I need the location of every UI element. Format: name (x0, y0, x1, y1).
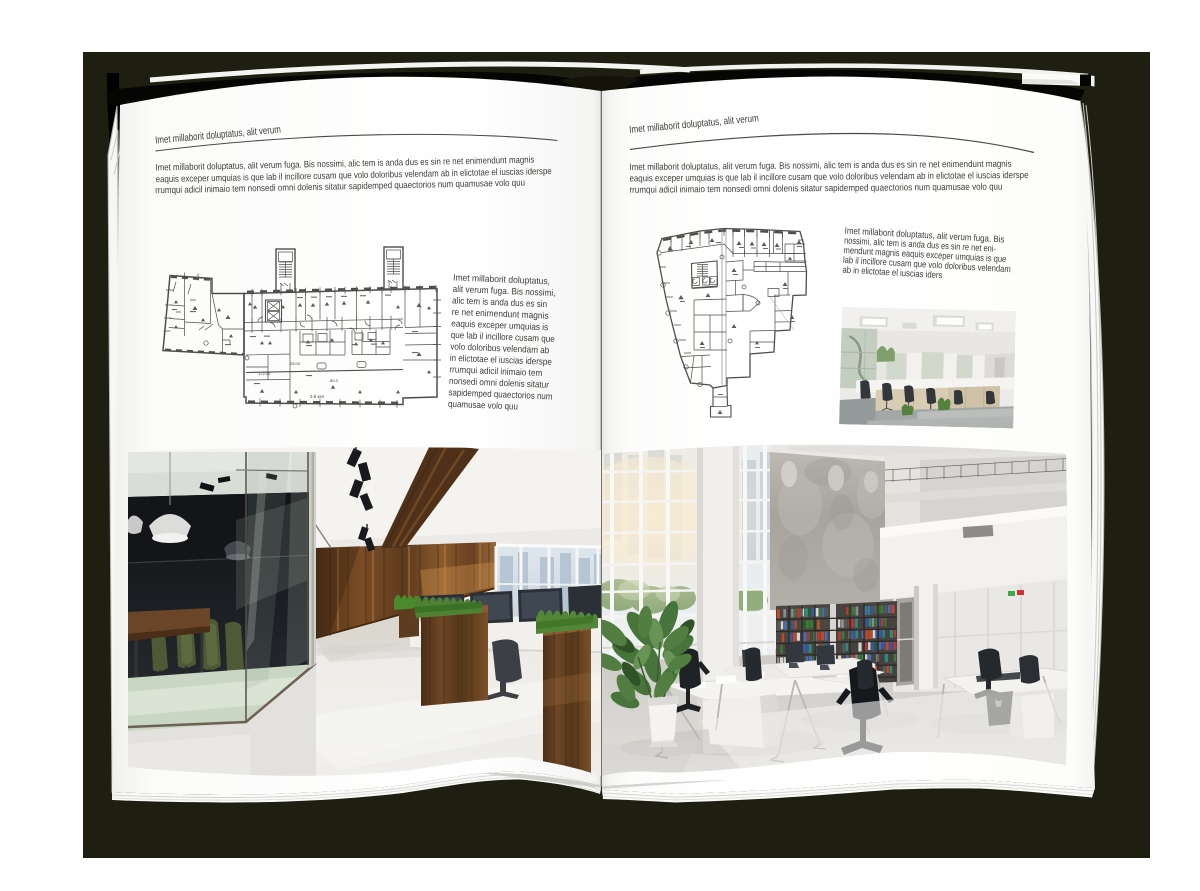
svg-text:1=2.00: 1=2.00 (258, 371, 271, 376)
svg-text:25.00: 25.00 (290, 361, 301, 366)
svg-text:2-й зал: 2-й зал (310, 394, 324, 399)
svg-text:80.3: 80.3 (330, 378, 339, 383)
